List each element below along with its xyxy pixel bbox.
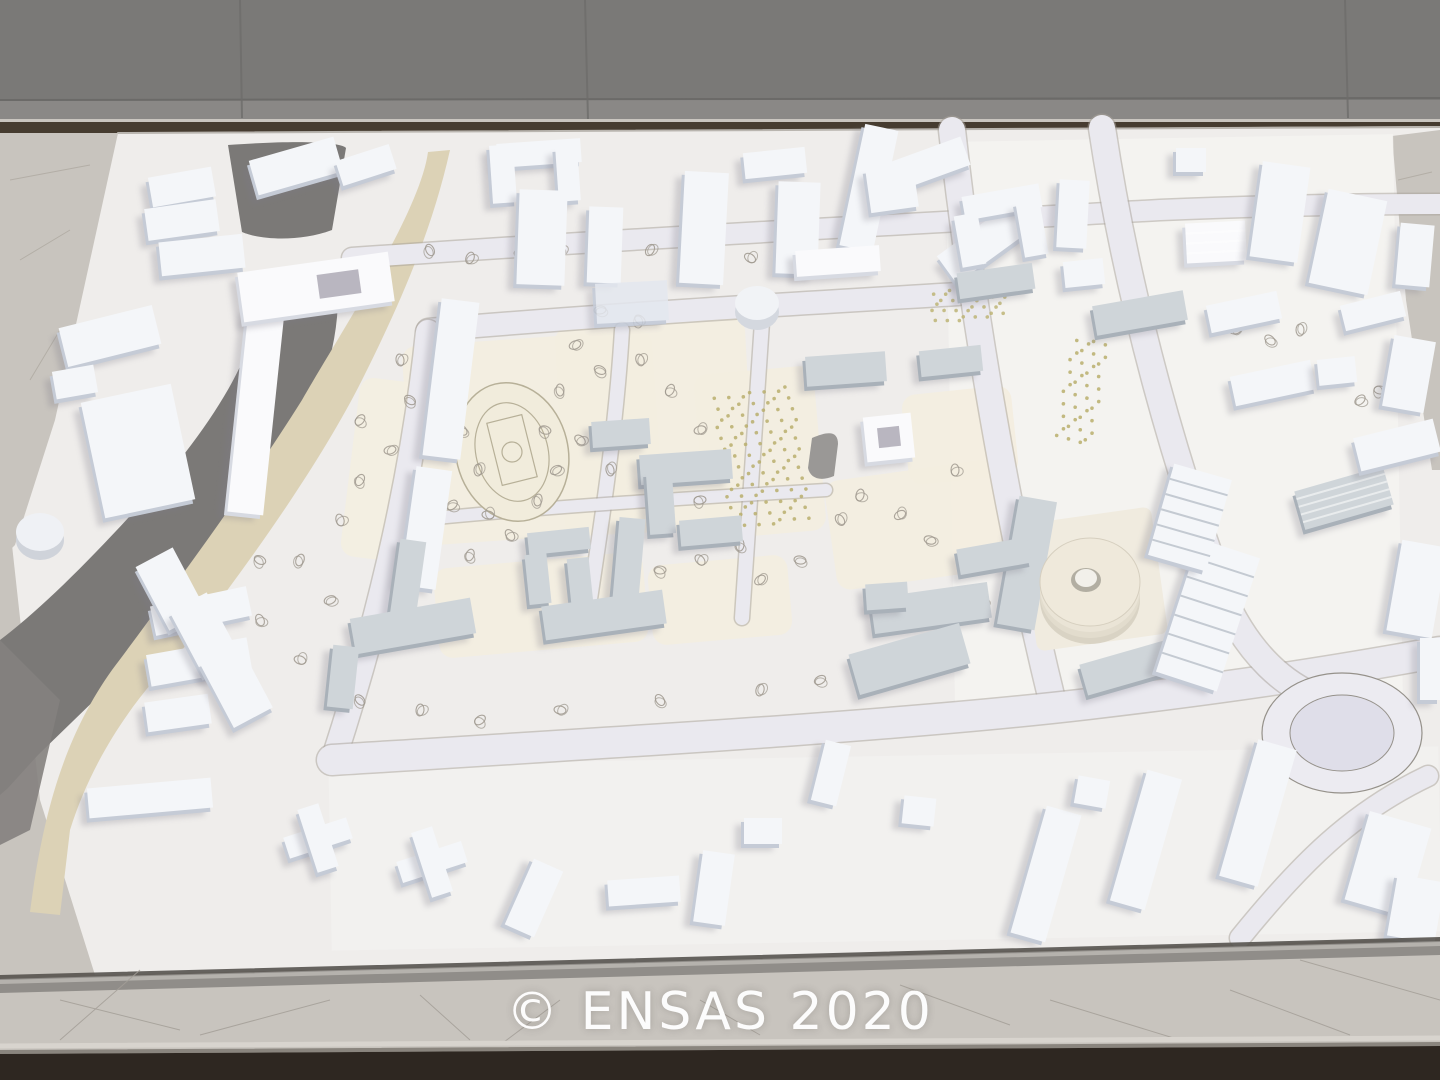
tower [507, 189, 568, 293]
ground-cream [647, 554, 793, 646]
tower [577, 206, 623, 290]
acrylic-building [586, 280, 669, 331]
model-scene [0, 0, 1440, 1080]
building [796, 351, 887, 394]
watermark: © ENSAS 2020 [0, 982, 1440, 1042]
tower [670, 170, 729, 292]
roundabout-inner [1290, 695, 1394, 771]
pond-triangle [808, 433, 838, 479]
building [1047, 179, 1090, 256]
wall-band-dark [0, 0, 1440, 100]
building-windowed [1176, 220, 1247, 271]
building [598, 876, 681, 915]
building [735, 818, 782, 851]
building [582, 418, 651, 456]
courtyard-hole [877, 426, 901, 448]
building [1411, 638, 1440, 707]
disc-building-hole-floor [1075, 569, 1097, 587]
building [670, 515, 744, 554]
building [786, 245, 881, 284]
building [1386, 222, 1435, 294]
plaza-cylinder-top [735, 286, 779, 320]
photo-architectural-model: © ENSAS 2020 [0, 0, 1440, 1080]
wall-band-light [0, 100, 1440, 122]
building [856, 163, 920, 221]
cylinder-stub-top [16, 513, 64, 551]
wall-edge-highlight [0, 119, 1440, 122]
building [317, 644, 359, 716]
